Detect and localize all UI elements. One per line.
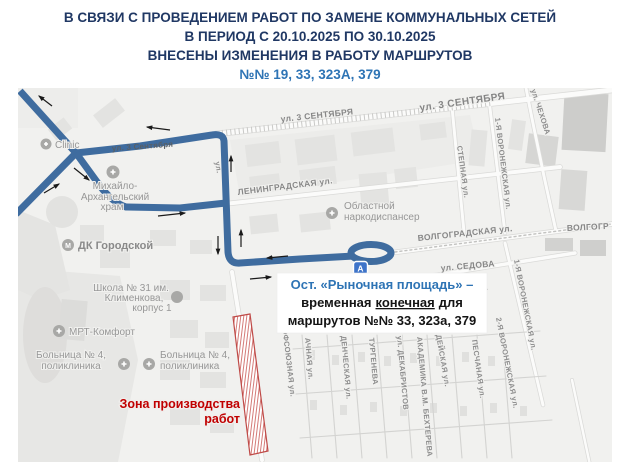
culture-house-icon: М — [62, 239, 74, 251]
poi-hospital2-line2: поликлиника — [160, 361, 220, 372]
header-line-1: В СВЯЗИ С ПРОВЕДЕНИЕМ РАБОТ ПО ЗАМЕНЕ КО… — [0, 8, 620, 27]
work-zone-label-line1: Зона производства — [120, 397, 242, 411]
header-line-3: ВНЕСЕНЫ ИЗМЕНЕНИЯ В РАБОТУ МАРШРУТОВ — [0, 46, 620, 65]
poi-clinic: Clinic — [55, 140, 79, 151]
callout-line2-part1: временная — [301, 295, 371, 310]
terminal-callout: Ост. «Рыночная площадь» – временнаяконеч… — [277, 273, 487, 333]
poi-hospital1-line2: поликлиника — [41, 361, 101, 372]
hospital-2-medical-icon — [143, 358, 155, 370]
poi-hospital1-line1: Больница № 4, — [36, 350, 106, 361]
clinic-medical-icon — [41, 139, 52, 150]
route-map: ул. ул. 3 Сентября — [0, 88, 620, 470]
dispensary-medical-icon — [326, 207, 338, 219]
bus-stop-letter: А — [357, 264, 363, 274]
hospital-1-medical-icon — [118, 358, 130, 370]
poi-temple-line1: Михайло- — [93, 181, 138, 192]
poi-dk-gorodskoy: ДК Городской — [78, 240, 153, 252]
poi-narco-line1: Областной — [344, 200, 395, 212]
callout-line1: Ост. «Рыночная площадь» – — [291, 277, 474, 292]
header-route-numbers: №№ 19, 33, 323А, 379 — [0, 65, 620, 84]
mrt-medical-icon — [53, 325, 65, 337]
poi-narco-line2: наркодиспансер — [344, 212, 420, 223]
map-canvas: ул. ул. 3 Сентября — [16, 88, 612, 465]
work-zone-label-line2: работ — [204, 412, 240, 426]
announcement-header: В СВЯЗИ С ПРОВЕДЕНИЕМ РАБОТ ПО ЗАМЕНЕ КО… — [0, 0, 620, 84]
svg-text:М: М — [65, 243, 71, 250]
callout-line3: маршрутов №№ 33, 323а, 379 — [288, 313, 476, 328]
callout-line2-part2: для — [439, 295, 463, 310]
poi-mrt: МРТ-Комфорт — [69, 326, 135, 338]
poi-school-line3: корпус 1 — [132, 303, 172, 314]
poi-hospital2-line1: Больница № 4, — [160, 350, 230, 361]
callout-line2: временнаяконечнаядля — [301, 295, 463, 310]
church-icon — [107, 166, 120, 179]
school-icon — [171, 291, 183, 303]
header-line-2: В ПЕРИОД С 20.10.2025 ПО 30.10.2025 — [0, 27, 620, 46]
poi-temple-line3: храм — [101, 202, 124, 213]
callout-line2-underlined: конечная — [376, 295, 435, 310]
